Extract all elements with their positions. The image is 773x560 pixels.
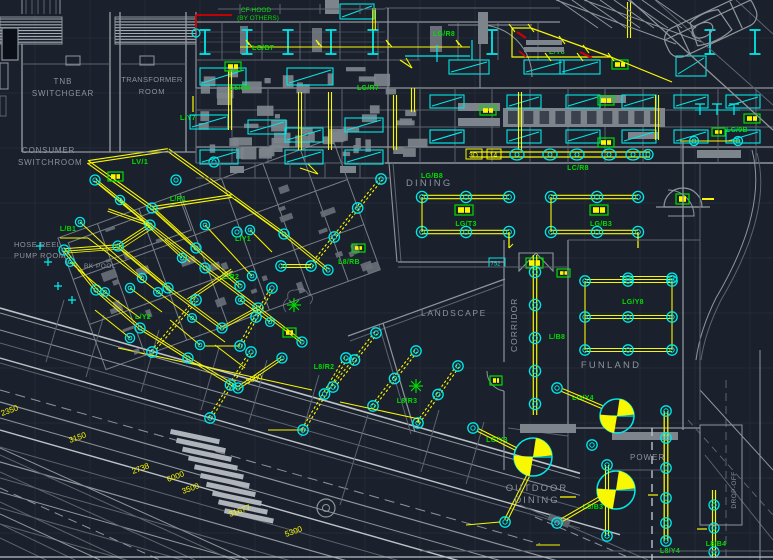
svg-text:LG/R8: LG/R8 [433, 31, 455, 38]
svg-text:BK POOL: BK POOL [84, 263, 116, 270]
svg-text:OUTDOOR: OUTDOOR [506, 483, 569, 494]
svg-text:LANDSCAPE: LANDSCAPE [421, 308, 487, 318]
svg-text:LG/T3: LG/T3 [455, 221, 476, 228]
svg-text:L/Y7: L/Y7 [180, 115, 196, 122]
svg-text:TNB: TNB [54, 77, 73, 86]
svg-text:L8/RB: L8/RB [338, 259, 360, 266]
svg-text:DINING: DINING [514, 495, 559, 506]
svg-text:HOSE REEL: HOSE REEL [14, 240, 61, 249]
svg-text:CONSUMER: CONSUMER [22, 146, 75, 155]
svg-text:FUNLAND: FUNLAND [581, 360, 641, 371]
svg-text:L/Y2: L/Y2 [135, 314, 151, 321]
svg-text:14: 14 [490, 153, 498, 160]
svg-text:LV/1: LV/1 [132, 157, 148, 166]
svg-text:LG/R7: LG/R7 [357, 85, 379, 92]
svg-text:3D: 3D [469, 153, 478, 160]
svg-text:CORRIDOR: CORRIDOR [509, 298, 519, 352]
svg-text:LG/Y8: LG/Y8 [622, 299, 644, 306]
svg-text:LG/B7: LG/B7 [252, 45, 274, 52]
svg-text:ROOM: ROOM [139, 87, 166, 96]
svg-text:L/Y1: L/Y1 [235, 236, 251, 243]
svg-text:PUMP ROOM: PUMP ROOM [14, 251, 65, 260]
svg-text:L/R2: L/R2 [223, 274, 239, 281]
svg-text:(BY OTHERS): (BY OTHERS) [237, 15, 279, 22]
svg-text:LC/R8: LC/R8 [567, 165, 589, 172]
svg-text:CF-HOOD: CF-HOOD [241, 7, 272, 14]
svg-text:L/R1: L/R1 [170, 196, 186, 203]
svg-text:L8/R2: L8/R2 [314, 364, 335, 371]
svg-text:LC/9B: LC/9B [726, 127, 748, 134]
svg-text:L/B8: L/B8 [549, 334, 565, 341]
svg-text:SWITCHGEAR: SWITCHGEAR [32, 89, 94, 98]
svg-text:L5/R9: L5/R9 [230, 85, 251, 92]
svg-text:POWER: POWER [630, 453, 665, 462]
svg-text:L8/B4: L8/B4 [706, 541, 727, 548]
svg-text:DINING: DINING [406, 178, 452, 189]
svg-text:L8/R3: L8/R3 [397, 398, 418, 405]
svg-text:SWITCHROOM: SWITCHROOM [18, 158, 82, 167]
svg-text:LG/B3: LG/B3 [590, 221, 612, 228]
svg-text:L/B1: L/B1 [60, 226, 76, 233]
svg-text:DROP-OFF: DROP-OFF [731, 471, 738, 508]
svg-text:TRANSFORMER: TRANSFORMER [121, 75, 182, 84]
